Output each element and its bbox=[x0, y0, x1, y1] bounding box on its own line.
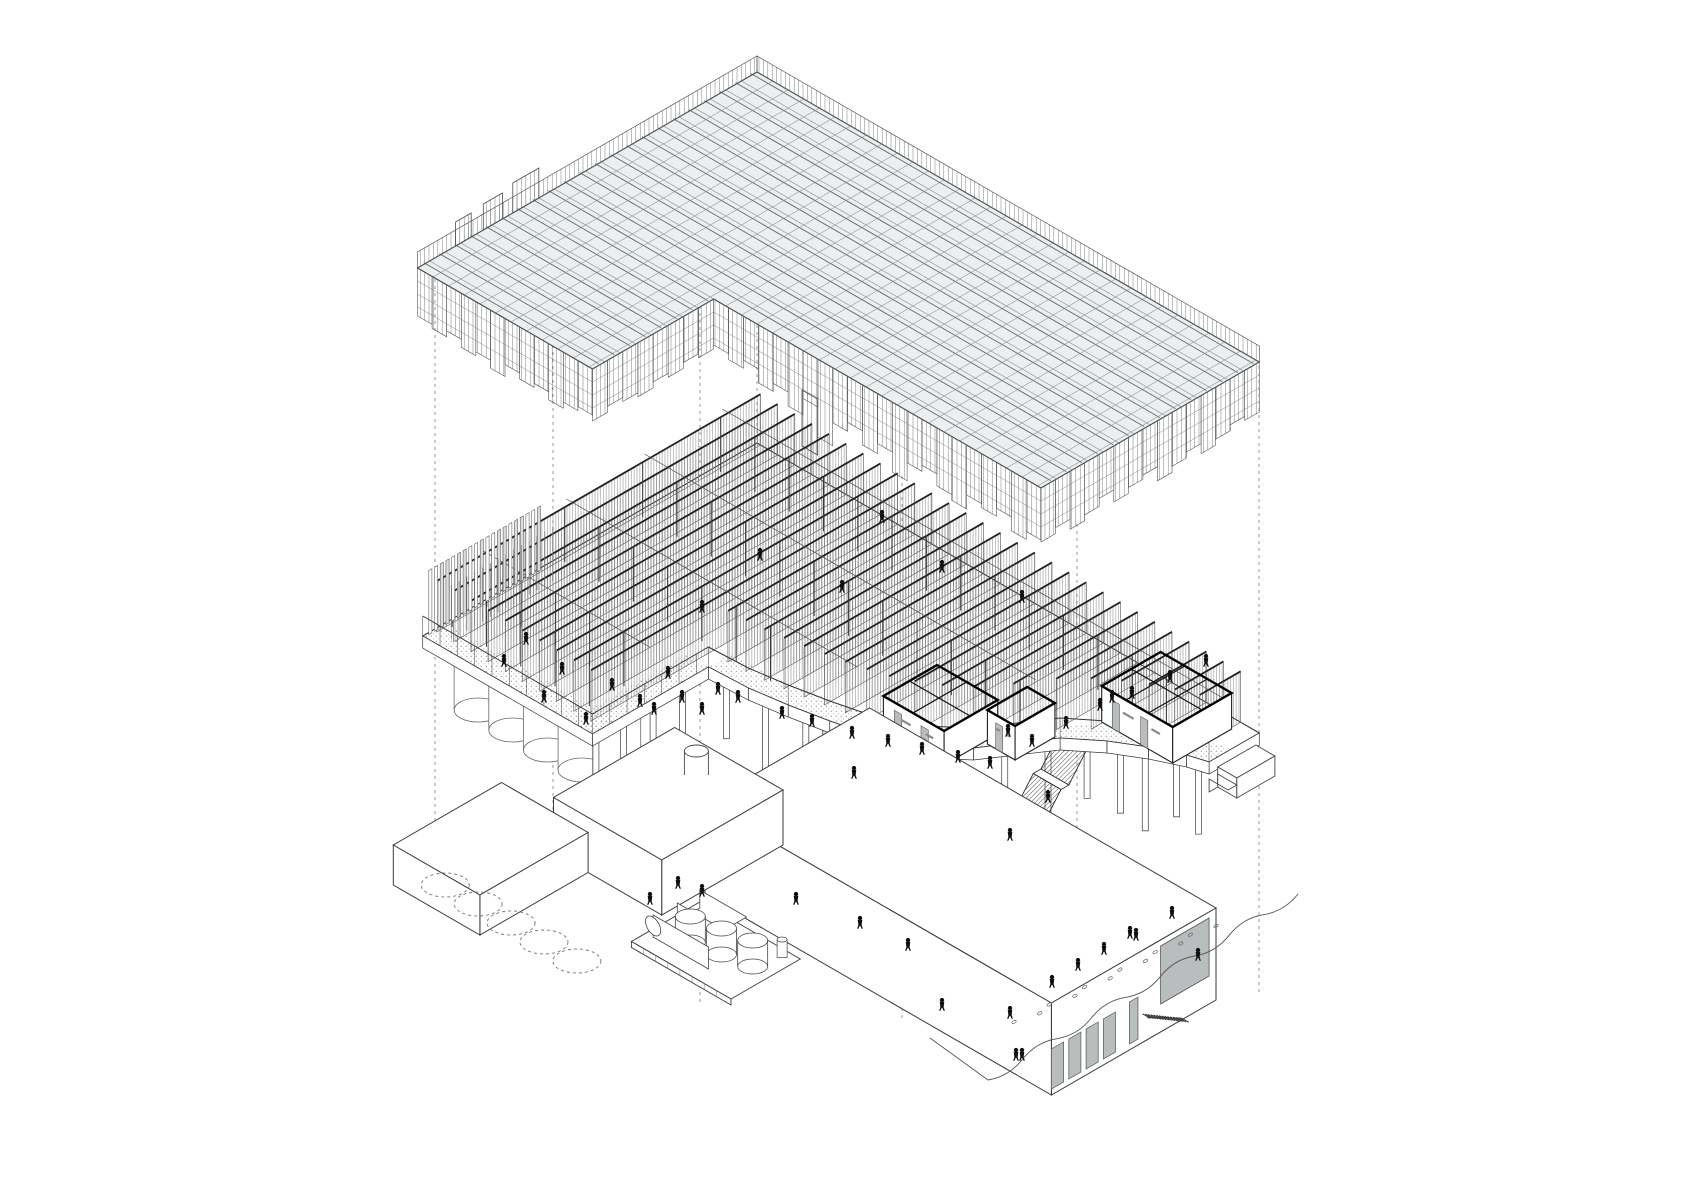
roof-fascia-bay bbox=[863, 385, 878, 454]
fence-slat bbox=[480, 539, 483, 605]
fence-slat bbox=[526, 513, 529, 579]
person-figure bbox=[699, 702, 705, 715]
roof-fascia-bay bbox=[461, 293, 476, 355]
fence-slat bbox=[515, 519, 518, 585]
roof-fascia-bay bbox=[892, 402, 907, 481]
pile bbox=[763, 702, 769, 774]
room-door-panel bbox=[1112, 700, 1119, 732]
roof-fascia-bay bbox=[1157, 412, 1172, 480]
pile bbox=[1117, 751, 1123, 813]
roof-fascia-bay bbox=[877, 394, 892, 453]
fence-slat bbox=[435, 565, 438, 631]
roof-fascia-bay bbox=[1056, 471, 1071, 527]
chimney-cylinder bbox=[684, 745, 708, 757]
roof-fascia-bay bbox=[699, 299, 714, 358]
roof-fascia-bay bbox=[476, 302, 491, 360]
roof-fascia-bay bbox=[638, 334, 653, 397]
roof-fascia-bay bbox=[982, 454, 997, 517]
roof-fascia-bay bbox=[623, 343, 638, 402]
roof-fascia-bay bbox=[1041, 480, 1056, 542]
door-panel bbox=[1129, 997, 1138, 1044]
dashed-footprint-circle bbox=[520, 930, 568, 954]
pipe-top bbox=[777, 937, 787, 942]
pile bbox=[723, 683, 729, 739]
fence-slat bbox=[520, 516, 523, 582]
fence-slat bbox=[469, 546, 472, 612]
fence-slat bbox=[532, 509, 535, 575]
pile bbox=[1084, 748, 1090, 798]
roof-fascia-bay bbox=[744, 316, 759, 369]
roof-fascia-bay bbox=[1099, 446, 1114, 498]
slab-edge-band bbox=[1060, 738, 1107, 753]
roof-fascia-bay bbox=[1128, 429, 1143, 487]
storage-tank-top bbox=[706, 921, 736, 936]
roof-fascia-bay bbox=[773, 333, 788, 392]
door-panel bbox=[1069, 1032, 1081, 1079]
fence-slat bbox=[452, 556, 455, 622]
storage-tank-top bbox=[675, 909, 705, 924]
fence-slat bbox=[429, 569, 432, 635]
roof-fascia-bay bbox=[952, 437, 967, 510]
dashed-footprint-circle bbox=[553, 949, 601, 973]
fence-slat bbox=[446, 559, 449, 625]
roof-fascia-bay bbox=[967, 445, 982, 504]
fence-slat bbox=[440, 562, 443, 628]
podium-box-main bbox=[705, 708, 1216, 1095]
fence-slat bbox=[509, 523, 512, 589]
roof-fascia-bay bbox=[1245, 362, 1260, 420]
person-figure bbox=[715, 682, 721, 695]
pile bbox=[1174, 761, 1180, 817]
fence-slat bbox=[463, 549, 466, 615]
room-door-panel bbox=[1141, 717, 1148, 749]
room-door-panel bbox=[996, 723, 1003, 753]
door-panel bbox=[1086, 1022, 1098, 1069]
person-figure bbox=[987, 756, 993, 769]
exploded-axonometric-drawing bbox=[0, 0, 1684, 1191]
roof-fascia-bay bbox=[1172, 404, 1187, 466]
fence-slat bbox=[486, 536, 489, 602]
roof-fascia-bay bbox=[833, 368, 848, 432]
podium-base bbox=[393, 708, 1298, 1095]
roof-fascia-bay bbox=[418, 268, 433, 324]
door-panel bbox=[1103, 1012, 1115, 1059]
door-panel bbox=[1051, 1042, 1063, 1089]
roof-fascia-bay bbox=[1114, 438, 1129, 502]
podium-base bbox=[393, 708, 1298, 1095]
roof-fascia-bay bbox=[788, 342, 803, 415]
pile bbox=[1196, 766, 1202, 834]
roof-fascia-bay bbox=[1011, 471, 1026, 540]
roof-fascia-bay bbox=[549, 344, 564, 408]
pile bbox=[1142, 755, 1148, 831]
roof-fascia-bay bbox=[653, 325, 668, 382]
drawing-canvas bbox=[0, 0, 1684, 1191]
roof-fascia-bay bbox=[1187, 396, 1202, 452]
person-figure bbox=[735, 690, 741, 703]
roof-fascia-bay bbox=[534, 335, 549, 392]
storage-tank-top bbox=[738, 933, 768, 948]
roof-fascia-bay bbox=[563, 352, 578, 410]
fence-slat bbox=[537, 506, 540, 572]
fence-slat bbox=[492, 532, 495, 598]
